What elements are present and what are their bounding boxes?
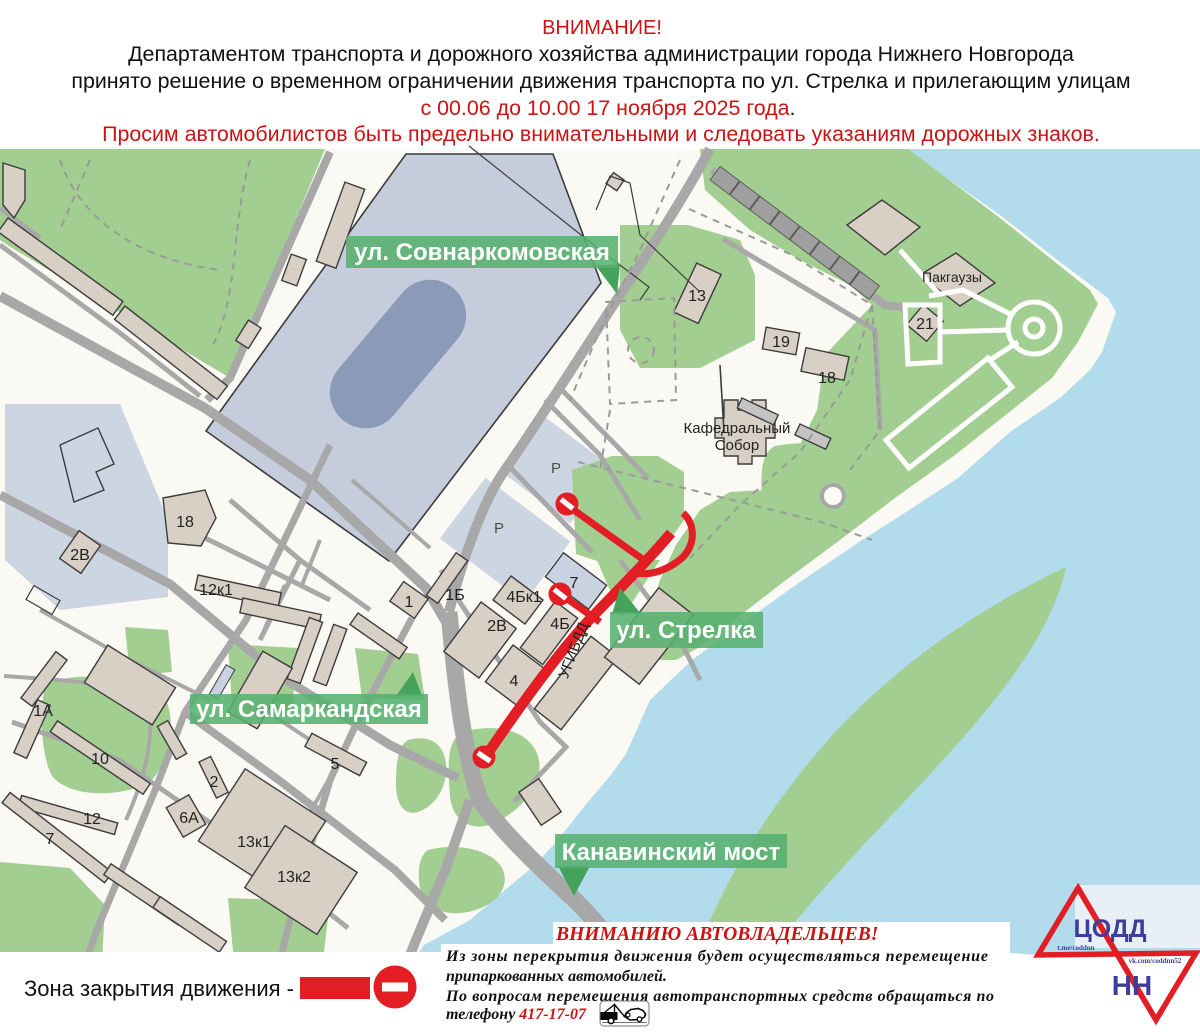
svg-text:5: 5	[331, 756, 340, 773]
svg-text:Из зоны перекрытия движения бу: Из зоны перекрытия движения будет осущес…	[445, 948, 988, 965]
svg-text:4Б: 4Б	[550, 616, 569, 633]
svg-text:ул. Стрелка: ул. Стрелка	[616, 617, 756, 644]
svg-text:19: 19	[772, 334, 790, 351]
svg-text:Кафедральный: Кафедральный	[684, 420, 791, 437]
svg-text:1Б: 1Б	[445, 587, 464, 604]
svg-text:10: 10	[91, 751, 109, 768]
svg-text:ЦОДД: ЦОДД	[1074, 915, 1147, 943]
svg-text:vk.com/coddnn52: vk.com/coddnn52	[1129, 957, 1182, 965]
svg-text:12к1: 12к1	[199, 582, 233, 599]
svg-text:18: 18	[176, 514, 194, 531]
svg-text:4: 4	[510, 673, 519, 690]
svg-text:t.me/coddnn: t.me/coddnn	[1057, 944, 1094, 952]
svg-text:7: 7	[46, 831, 55, 848]
svg-text:12: 12	[83, 811, 101, 828]
svg-text:4Бк1: 4Бк1	[506, 589, 541, 606]
svg-text:с 00.06 до 10.00 17 ноября 202: с 00.06 до 10.00 17 ноября 2025 года.	[421, 96, 796, 120]
svg-text:Канавинский мост: Канавинский мост	[562, 839, 781, 866]
svg-text:принято решение о временном ог: принято решение о временном ограничении …	[71, 69, 1130, 93]
svg-text:ул. Совнаркомовская: ул. Совнаркомовская	[354, 239, 610, 266]
svg-text:Департаментом транспорта и дор: Департаментом транспорта и дорожного хоз…	[128, 42, 1074, 66]
svg-text:Пакгаузы: Пакгаузы	[922, 269, 982, 285]
svg-text:Р: Р	[494, 520, 504, 537]
svg-text:1А: 1А	[33, 703, 53, 720]
svg-text:По вопросам перемещения автотр: По вопросам перемещения автотранспортных…	[445, 988, 994, 1005]
svg-text:13: 13	[688, 288, 706, 305]
svg-text:Р: Р	[551, 460, 561, 477]
svg-text:ул. Самаркандская: ул. Самаркандская	[196, 696, 422, 723]
svg-text:НН: НН	[1112, 970, 1152, 1001]
svg-text:телефону 417-17-07: телефону 417-17-07	[446, 1006, 587, 1023]
svg-text:Просим автомобилистов быть пре: Просим автомобилистов быть предельно вни…	[102, 122, 1100, 146]
svg-text:ВНИМАНИЮ АВТОВЛАДЕЛЬЦЕВ!: ВНИМАНИЮ АВТОВЛАДЕЛЬЦЕВ!	[555, 924, 878, 945]
svg-text:Зона закрытия движения -: Зона закрытия движения -	[24, 976, 294, 1001]
svg-text:18: 18	[818, 370, 836, 387]
svg-text:7: 7	[570, 575, 579, 592]
svg-text:2В: 2В	[70, 547, 90, 564]
svg-text:2: 2	[210, 774, 219, 791]
svg-text:2В: 2В	[487, 618, 507, 635]
svg-text:ВНИМАНИЕ!: ВНИМАНИЕ!	[542, 17, 662, 39]
svg-text:13к1: 13к1	[237, 834, 271, 851]
svg-text:1: 1	[405, 594, 414, 611]
svg-text:припаркованных автомобилей.: припаркованных автомобилей.	[446, 968, 667, 985]
svg-text:13к2: 13к2	[277, 869, 311, 886]
svg-text:6А: 6А	[179, 810, 199, 827]
svg-text:Собор: Собор	[715, 437, 759, 454]
svg-text:21: 21	[916, 316, 934, 333]
